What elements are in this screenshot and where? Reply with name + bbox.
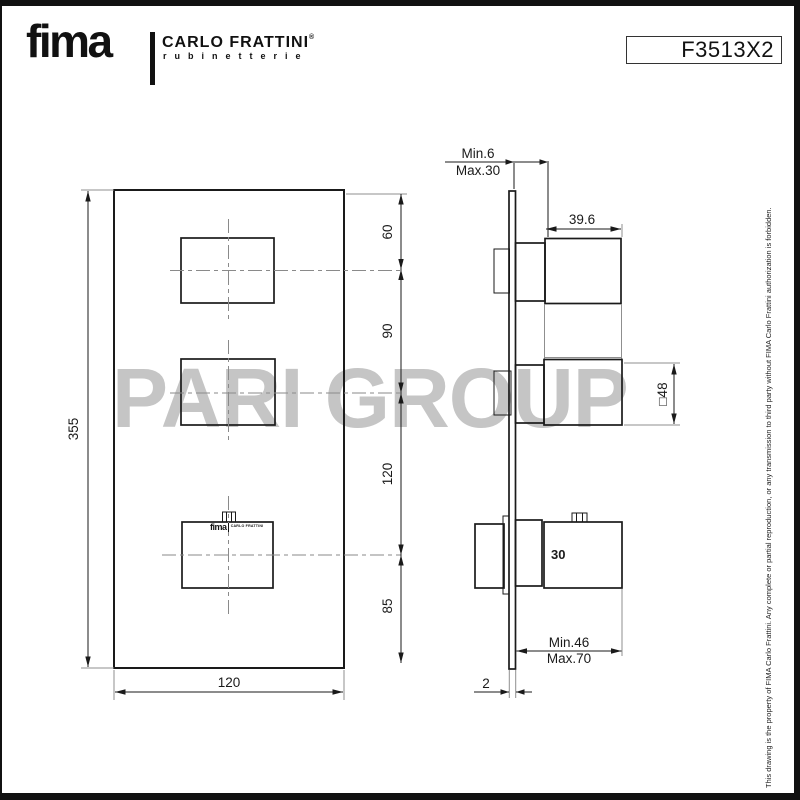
front-height-label: 355	[66, 418, 81, 441]
handle-mini-logo-fima: fima	[210, 523, 227, 532]
side-handle-top	[494, 239, 621, 304]
front-seg-60-label: 60	[380, 224, 395, 239]
front-seg-85-label: 85	[380, 598, 395, 613]
dim-thickness2-label: 2	[482, 676, 490, 691]
side-dim-thickness2: 2	[474, 670, 532, 698]
side-phantom-lines	[545, 304, 622, 359]
side-thermostatic-tab	[572, 513, 587, 522]
dim-min6-label: Min.6	[461, 146, 494, 161]
front-dim-width: 120	[114, 670, 344, 700]
side-dim-min6-max30: Min.6 Max.30	[445, 146, 549, 237]
front-centerlines	[162, 219, 401, 614]
side-dim-39-6: 39.6	[546, 212, 622, 237]
front-width-label: 120	[218, 675, 241, 690]
datasheet-page: fima CARLO FRATTINI® rubinetterie F3513X…	[0, 0, 800, 800]
front-dim-height: 355	[66, 190, 114, 668]
copyright-note: This drawing is the property of FIMA Car…	[764, 207, 773, 788]
knob-temperature-label: 30	[551, 547, 565, 562]
front-view: 355 60 90 120 85 120	[66, 190, 407, 700]
handle-mini-logo: fima CARLO FRATTINI	[210, 523, 263, 532]
dim-square48-label: □48	[655, 382, 670, 405]
front-seg-120-label: 120	[380, 463, 395, 486]
side-handle-middle	[494, 360, 622, 426]
dim-max70-label: Max.70	[547, 651, 591, 666]
dim-39-6-label: 39.6	[569, 212, 595, 227]
side-dim-min46-max70: Min.46 Max.70	[517, 589, 623, 666]
side-dim-square48: □48	[624, 363, 680, 425]
dim-max30-label: Max.30	[456, 163, 500, 178]
dim-min46-label: Min.46	[549, 635, 590, 650]
side-view: 30 Min.6 Max.30 39.6	[445, 146, 680, 698]
front-dim-chain: 60 90 120 85	[346, 194, 407, 663]
front-seg-90-label: 90	[380, 323, 395, 338]
technical-drawing: 355 60 90 120 85 120	[2, 6, 800, 800]
side-handle-thermostatic: 30	[475, 513, 622, 594]
handle-mini-logo-sub: CARLO FRATTINI	[231, 525, 264, 529]
handle-mini-logo-bar	[228, 523, 229, 532]
